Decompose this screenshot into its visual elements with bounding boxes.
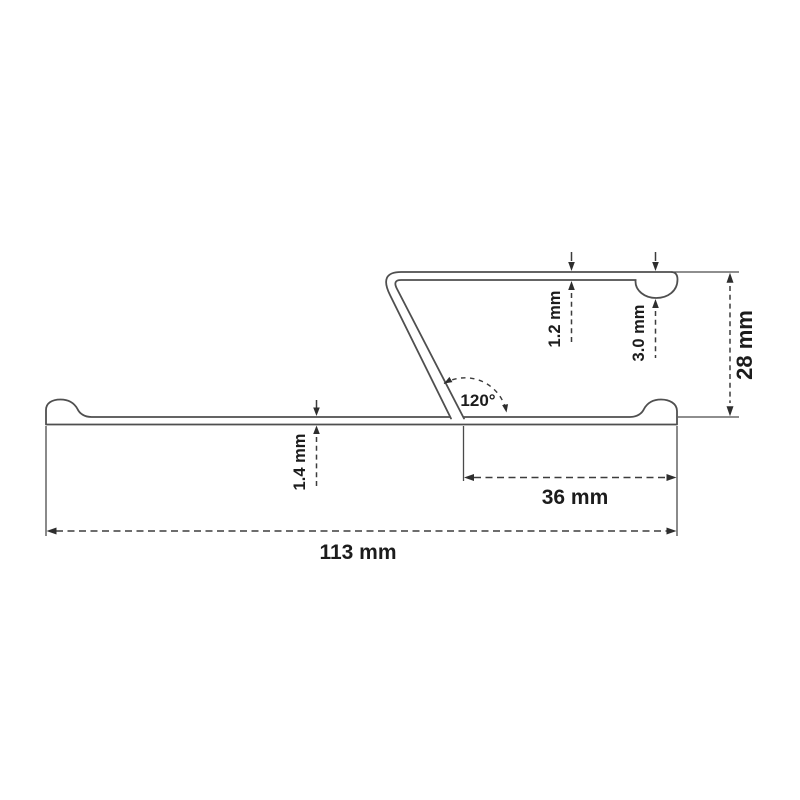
drawing-canvas: 113 mm 36 mm 28 mm 1.2 mm [0, 0, 800, 800]
label-base-thickness: 1.4 mm [291, 434, 309, 491]
label-end-bead: 3.0 mm [630, 305, 648, 362]
arrowhead-30-up [652, 299, 659, 308]
arrowhead-36-left [464, 474, 474, 481]
dimension-overall-width: 113 mm [47, 528, 677, 565]
arrowhead-30-down [652, 262, 659, 271]
profile-geometry [46, 272, 678, 425]
label-bend-angle: 120° [460, 391, 495, 410]
dimension-end-bead: 3.0 mm [630, 252, 659, 361]
label-overall-height: 28 mm [732, 310, 757, 380]
dimension-overall-height: 28 mm [727, 273, 758, 416]
dimension-flange-width: 36 mm [464, 474, 677, 509]
arrowhead-14-down [313, 408, 320, 417]
dimension-top-wall-thickness: 1.2 mm [546, 252, 575, 347]
label-overall-width: 113 mm [319, 541, 396, 564]
arrowhead-113-left [47, 528, 57, 535]
arrowhead-12-up [568, 281, 575, 290]
dimension-base-thickness: 1.4 mm [291, 400, 320, 490]
arrowhead-angle-right [502, 404, 509, 413]
arrowhead-14-up [313, 426, 320, 435]
label-top-wall-thickness: 1.2 mm [546, 291, 564, 348]
arrowhead-12-down [568, 262, 575, 271]
arrowhead-113-right [667, 528, 677, 535]
arrowhead-36-right [667, 474, 677, 481]
arrowhead-28-top [727, 273, 734, 283]
base-plate-outline [46, 400, 677, 425]
label-flange-width: 36 mm [542, 486, 609, 509]
arrowhead-28-bottom [727, 406, 734, 416]
profile-technical-drawing: 113 mm 36 mm 28 mm 1.2 mm [0, 0, 800, 800]
